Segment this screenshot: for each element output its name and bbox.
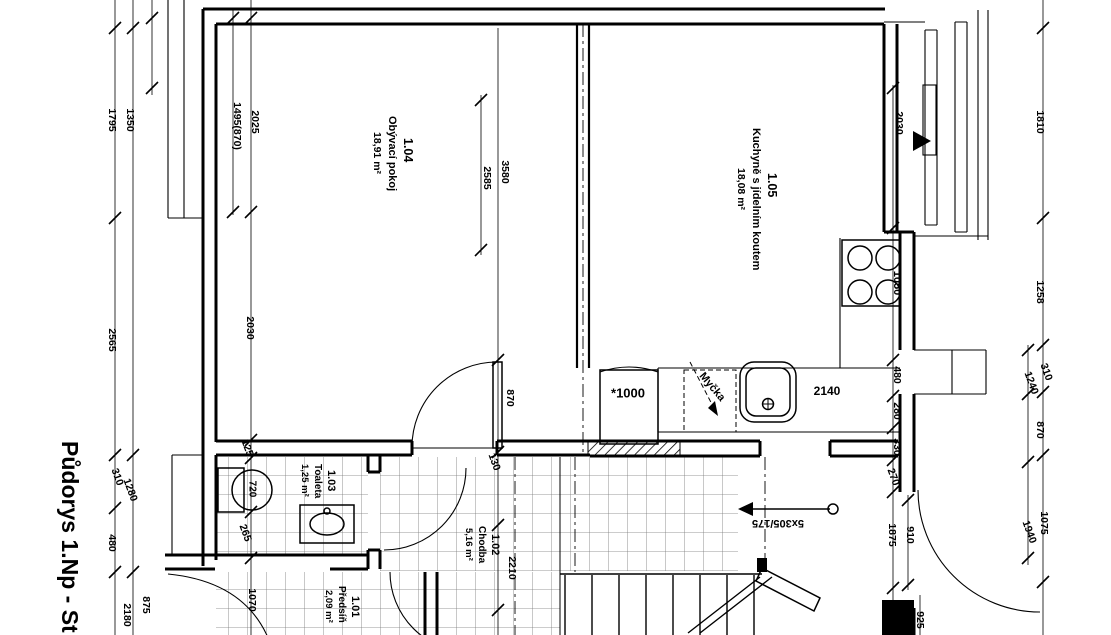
room-name: Toaleta (312, 464, 323, 499)
room-label-1-04: 1.04 Obývací pokoj 18,91 m² (371, 116, 415, 191)
annotation-label: Myčka (697, 370, 728, 404)
dimension-label: 2025 (249, 110, 261, 134)
dimension-label: 1940 (1020, 519, 1039, 545)
dimension-label: 480 (891, 366, 903, 384)
drawing-title: Půdorys 1.Np - St (57, 441, 83, 633)
room-id: 1.03 (325, 470, 337, 491)
dimension-label: 870 (504, 389, 516, 407)
floor-plan-page: 1795135025653101280480875218020251495(87… (0, 0, 1111, 635)
floor-plan-drawing: 1795135025653101280480875218020251495(87… (0, 0, 1111, 635)
dimension-label: 1258 (1034, 280, 1046, 304)
stair-door-leaf (756, 568, 820, 611)
annotation-label: *1000 (611, 385, 645, 400)
dimension-label: 1795 (106, 108, 118, 132)
annotation-label: 720 (246, 481, 257, 498)
room-label-1-05: 1.05 Kuchyně s jídelním koutem 18,08 m² (735, 128, 779, 271)
wall-stub (882, 600, 914, 635)
dimension-label: 1240 (1022, 370, 1041, 396)
dimension-label: 310 (1038, 362, 1055, 383)
dimension-label: 1875 (886, 523, 898, 547)
dishwasher (684, 362, 736, 432)
room-area: 2,09 m² (323, 590, 334, 623)
dimension-label: 870 (1034, 421, 1046, 439)
dimension-label: 1075 (1038, 511, 1050, 535)
room-name: Kuchyně s jídelním koutem (750, 128, 762, 271)
annotation-label: 2140 (814, 384, 841, 398)
dimension-label: 2585 (481, 166, 493, 190)
dimension-label: 925 (914, 611, 926, 629)
room-id: 1.04 (401, 138, 415, 162)
dimension-label: 2180 (121, 603, 133, 627)
window-opening-arrow-icon (913, 131, 931, 151)
room-area: 1,25 m² (299, 464, 310, 497)
room-name: Předsíň (336, 586, 347, 623)
room-id: 1.01 (349, 596, 361, 617)
door-leaf (493, 362, 502, 448)
stair-direction-arrow (738, 502, 838, 516)
room-id: 1.02 (489, 534, 501, 555)
dimension-label: 1810 (1034, 110, 1046, 134)
dimension-label: 2030 (893, 111, 905, 135)
kitchen-cabinet (600, 367, 658, 444)
page-title: Půdorys 1.Np - St (57, 441, 83, 633)
kitchen-sink (740, 362, 796, 422)
dimension-label: 1495(870) (231, 102, 243, 150)
room-area: 18,08 m² (735, 168, 747, 211)
dimension-label: 910 (904, 526, 916, 544)
dimension-label: 280 (891, 402, 903, 420)
door-jamb (757, 558, 767, 572)
room-id: 1.05 (765, 173, 779, 197)
dimension-label: 480 (106, 534, 118, 552)
annotation-label: 5x305/175 (752, 517, 804, 529)
room-name: Chodba (476, 526, 487, 564)
dimension-label: 2030 (244, 316, 256, 340)
room-area: 5,16 m² (463, 528, 474, 561)
dimension-label: 1350 (124, 108, 136, 132)
annotation-label: 1050 (891, 271, 903, 295)
dimension-label: 3580 (499, 160, 511, 184)
room-name: Obývací pokoj (386, 116, 398, 191)
dimension-label: 330 (891, 438, 903, 456)
dimension-label: 2210 (506, 556, 518, 580)
dimension-label: 1070 (246, 588, 258, 612)
kitchen-counter (658, 238, 900, 432)
dimension-label: 2565 (106, 328, 118, 352)
room-area: 18,91 m² (371, 132, 383, 175)
dimension-label: 1280 (121, 477, 140, 503)
dimension-label: 875 (140, 596, 152, 614)
